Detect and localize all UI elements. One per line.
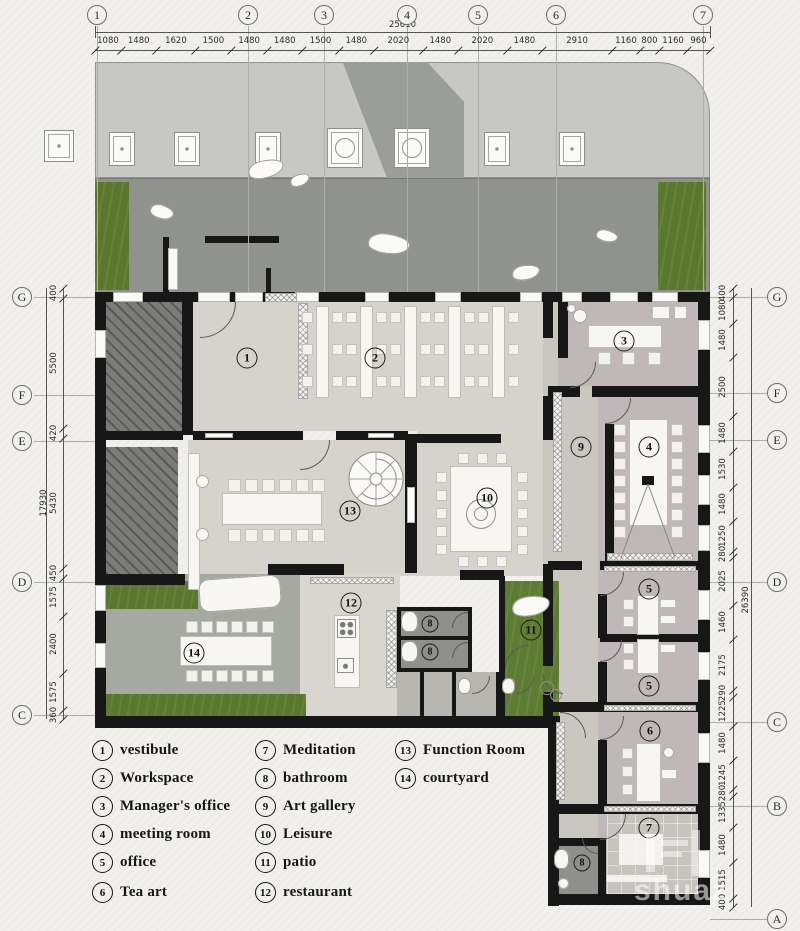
legend-number: 10 <box>255 824 276 845</box>
legend-label: courtyard <box>423 770 489 787</box>
watermark-glyph-stroke <box>660 840 688 846</box>
legend-item-11: 11patio <box>255 852 317 873</box>
legend-item-10: 10Leisure <box>255 824 332 845</box>
watermark-glyph-stroke <box>692 830 700 876</box>
legend-item-8: 8bathroom <box>255 768 348 789</box>
legend-label: Meditation <box>283 742 356 759</box>
legend-number: 11 <box>255 852 276 873</box>
legend-item-1: 1vestibule <box>92 740 178 761</box>
legend-label: Leisure <box>283 826 332 843</box>
legend-number: 6 <box>92 882 113 903</box>
legend-number: 3 <box>92 796 113 817</box>
legend-label: Art gallery <box>283 798 356 815</box>
legend-number: 13 <box>395 740 416 761</box>
legend-item-4: 4meeting room <box>92 824 211 845</box>
legend-item-6: 6Tea art <box>92 882 167 903</box>
legend-number: 4 <box>92 824 113 845</box>
legend-number: 7 <box>255 740 276 761</box>
legend-number: 5 <box>92 852 113 873</box>
legend-label: vestibule <box>120 742 178 759</box>
legend-item-3: 3Manager's office <box>92 796 230 817</box>
legend-label: meeting room <box>120 826 211 843</box>
legend-label: restaurant <box>283 884 352 901</box>
legend-item-7: 7Meditation <box>255 740 356 761</box>
legend-label: patio <box>283 854 317 871</box>
legend-item-9: 9Art gallery <box>255 796 356 817</box>
legend-number: 2 <box>92 768 113 789</box>
legend-number: 14 <box>395 768 416 789</box>
legend-label: bathroom <box>283 770 348 787</box>
watermark: shuaz <box>598 816 798 926</box>
legend-label: Workspace <box>120 770 193 787</box>
watermark-text: shuaz <box>634 874 729 908</box>
legend-label: Manager's office <box>120 798 230 815</box>
legend-label: Tea art <box>120 884 167 901</box>
legend-number: 8 <box>255 768 276 789</box>
floor-plan-sheet: 2561010801480162015001480148015001480202… <box>0 0 800 931</box>
legend-item-13: 13Function Room <box>395 740 525 761</box>
legend-item-14: 14courtyard <box>395 768 489 789</box>
legend-number: 1 <box>92 740 113 761</box>
watermark-glyph-stroke <box>660 852 682 857</box>
legend: 1vestibule2Workspace3Manager's office4me… <box>0 0 800 931</box>
legend-label: office <box>120 854 156 871</box>
watermark-glyph-stroke <box>646 834 655 872</box>
legend-item-2: 2Workspace <box>92 768 193 789</box>
legend-item-5: 5office <box>92 852 156 873</box>
legend-number: 12 <box>255 882 276 903</box>
legend-item-12: 12restaurant <box>255 882 352 903</box>
legend-label: Function Room <box>423 742 525 759</box>
legend-number: 9 <box>255 796 276 817</box>
